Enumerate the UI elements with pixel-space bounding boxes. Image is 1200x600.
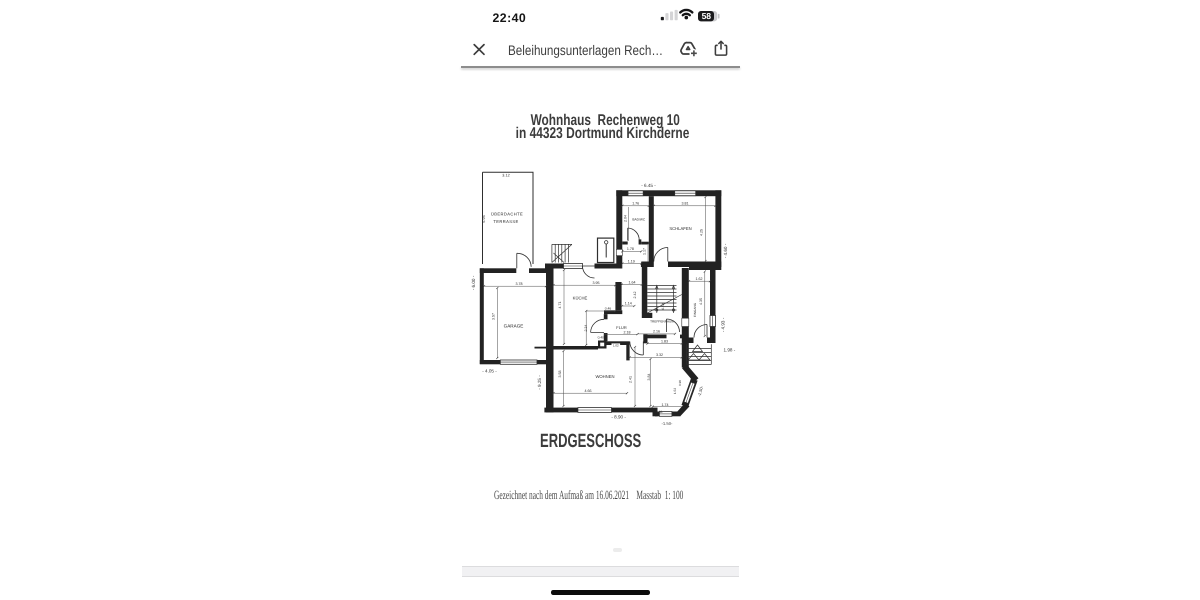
svg-text:TREPPENRAUM: TREPPENRAUM: [650, 320, 674, 324]
svg-text:2.18: 2.18: [624, 330, 631, 334]
svg-text:- 4.93 -: - 4.93 -: [721, 317, 726, 332]
svg-text:58: 58: [702, 11, 712, 21]
svg-text:1.62: 1.62: [696, 277, 703, 281]
svg-text:3.78: 3.78: [516, 282, 523, 286]
svg-text:- 4.05 -: - 4.05 -: [482, 369, 497, 374]
svg-text:1.74: 1.74: [662, 403, 669, 407]
svg-text:3.12: 3.12: [502, 174, 509, 178]
svg-text:1.17: 1.17: [643, 248, 647, 255]
svg-text:3.32: 3.32: [656, 353, 663, 357]
svg-text:2.41: 2.41: [629, 376, 633, 383]
svg-text:- 6.00 -: - 6.00 -: [471, 275, 476, 290]
svg-text:1.78: 1.78: [627, 247, 634, 251]
svg-text:3.81: 3.81: [682, 202, 689, 206]
svg-text:1.14: 1.14: [625, 302, 632, 306]
svg-text:3.58: 3.58: [558, 371, 562, 378]
svg-text:ÜBERDACHTE: ÜBERDACHTE: [491, 211, 523, 216]
svg-text:2.04: 2.04: [623, 215, 627, 222]
svg-text:- 8.90 -: - 8.90 -: [611, 415, 626, 420]
svg-text:-1.50-: -1.50-: [662, 421, 674, 426]
svg-text:1.98 -: 1.98 -: [724, 347, 736, 352]
svg-text:BAD/WC: BAD/WC: [632, 218, 645, 222]
svg-text:1.64: 1.64: [629, 280, 636, 284]
svg-text:4.71: 4.71: [558, 302, 562, 309]
svg-text:2.42: 2.42: [633, 292, 637, 299]
svg-text:0.58: 0.58: [661, 303, 665, 309]
svg-text:0.98: 0.98: [678, 380, 682, 386]
svg-text:- 4.60 -: - 4.60 -: [723, 243, 728, 258]
svg-text:KÜCHE: KÜCHE: [573, 296, 588, 301]
svg-text:EINGANG: EINGANG: [693, 302, 697, 317]
svg-text:3.84: 3.84: [647, 374, 651, 381]
svg-text:1.52: 1.52: [673, 388, 677, 394]
svg-text:1.76: 1.76: [632, 202, 639, 206]
svg-text:- 6.45 -: - 6.45 -: [641, 183, 656, 188]
svg-text:4.25: 4.25: [700, 229, 704, 236]
svg-text:FLUR: FLUR: [616, 325, 627, 330]
svg-text:1.02: 1.02: [613, 343, 619, 347]
svg-text:TERRASSE: TERRASSE: [493, 219, 518, 224]
svg-text:-1.50-: -1.50-: [697, 385, 705, 397]
svg-text:5.95: 5.95: [482, 215, 486, 222]
svg-text:GARAGE: GARAGE: [504, 324, 524, 329]
svg-text:2.34: 2.34: [584, 325, 588, 332]
svg-text:3.57: 3.57: [492, 313, 496, 320]
svg-text:2.16: 2.16: [653, 330, 660, 334]
svg-text:WOHNEN: WOHNEN: [595, 374, 614, 379]
svg-text:4.35: 4.35: [699, 298, 703, 305]
svg-text:4.66: 4.66: [585, 389, 592, 393]
svg-text:0.46: 0.46: [605, 307, 612, 311]
svg-text:- 9.25 -: - 9.25 -: [537, 375, 542, 390]
svg-text:1.83: 1.83: [661, 339, 668, 343]
svg-text:1.19: 1.19: [628, 259, 635, 263]
svg-text:SCHLAFEN: SCHLAFEN: [669, 226, 691, 231]
svg-text:0.48: 0.48: [598, 335, 605, 339]
svg-text:1.36: 1.36: [656, 410, 662, 414]
svg-text:3.95: 3.95: [593, 281, 600, 285]
